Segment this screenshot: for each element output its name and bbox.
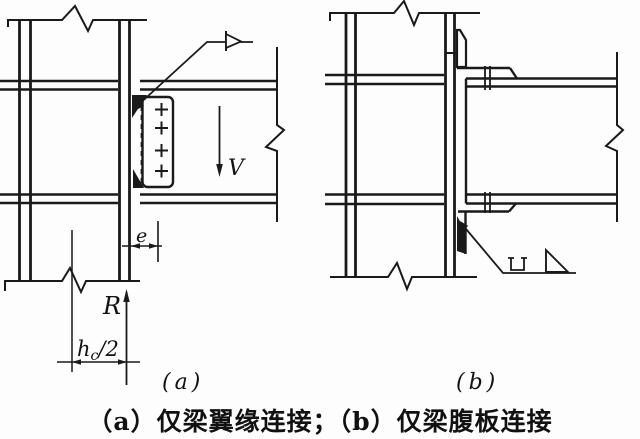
panel-b: (b) [325, 1, 623, 395]
figure-canvas: V e R hc/2 (a) [0, 0, 640, 439]
panel-a-label: (a) [162, 370, 204, 395]
field-weld-flag-icon [226, 34, 241, 48]
eccentricity-label: e [136, 225, 147, 247]
top-flange-plate [457, 68, 517, 79]
column-flanges-a [20, 20, 130, 281]
beam-flanges-b [466, 79, 617, 204]
dim-arrow [149, 243, 158, 249]
half-column-depth-label: hc/2 [77, 337, 119, 364]
weld-leader-b [461, 223, 576, 273]
figure-caption: （a）仅梁翼缘连接；（b）仅梁腹板连接 [0, 402, 640, 438]
u-groove-weld-icon [508, 258, 527, 270]
reaction-arrowhead [123, 289, 129, 302]
connection-diagram-svg: V e R hc/2 (a) [0, 0, 640, 439]
left-beam-and-stiffeners-a [0, 81, 118, 203]
shear-arrowhead [216, 164, 223, 177]
panel-b-label: (b) [456, 370, 499, 395]
top-vertical-plate [457, 30, 466, 67]
panel-a: V e R hc/2 (a) [0, 6, 284, 395]
reaction-label: R [102, 292, 121, 320]
column-flanges-b [346, 13, 455, 277]
fillet-weld-triangle-icon [546, 250, 568, 272]
break-zigzag-icon [8, 6, 147, 31]
shear-force-label: V [228, 156, 246, 181]
break-zigzag-icon [330, 1, 480, 25]
left-beam-and-stiffeners-b [325, 75, 444, 204]
